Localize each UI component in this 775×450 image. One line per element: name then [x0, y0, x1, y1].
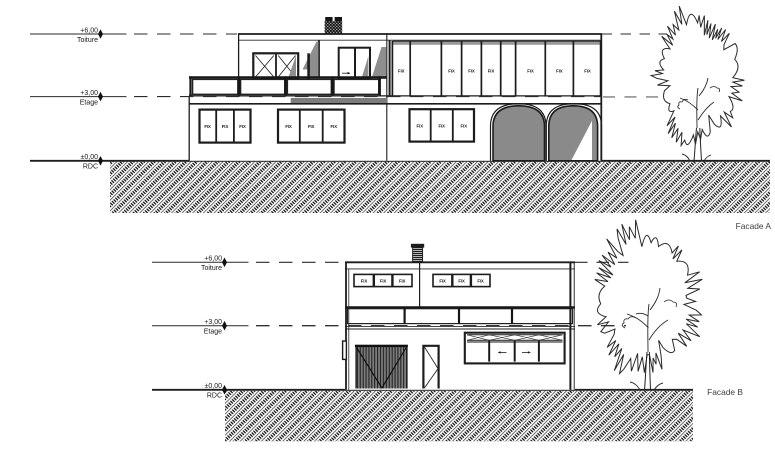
- svg-text:FIX: FIX: [380, 279, 387, 284]
- svg-text:FIX: FIX: [468, 68, 475, 73]
- svg-text:Toiture: Toiture: [77, 37, 98, 44]
- svg-text:FIX: FIX: [417, 124, 424, 129]
- svg-text:RDC: RDC: [83, 164, 98, 171]
- svg-text:±0,00: ±0,00: [81, 154, 99, 161]
- svg-text:FIX: FIX: [448, 68, 455, 73]
- svg-text:FIX: FIX: [222, 124, 229, 129]
- svg-text:FIX: FIX: [527, 68, 534, 73]
- svg-text:FIX: FIX: [584, 68, 591, 73]
- svg-text:FIX: FIX: [438, 124, 445, 129]
- svg-text:Facade B: Facade B: [707, 387, 743, 397]
- svg-text:FIX: FIX: [556, 68, 563, 73]
- svg-text:Etage: Etage: [80, 99, 98, 106]
- svg-text:+6,00: +6,00: [80, 27, 98, 34]
- svg-text:FIX: FIX: [458, 279, 465, 284]
- svg-text:FIX: FIX: [204, 124, 211, 129]
- svg-text:FIX: FIX: [488, 68, 495, 73]
- svg-text:FIX: FIX: [285, 124, 292, 129]
- svg-text:FIX: FIX: [308, 124, 315, 129]
- svg-text:Facade A: Facade A: [736, 221, 772, 231]
- svg-text:FIX: FIX: [398, 68, 405, 73]
- svg-text:FIX: FIX: [361, 279, 368, 284]
- svg-text:FIX: FIX: [477, 279, 484, 284]
- svg-text:FIX: FIX: [399, 279, 406, 284]
- svg-text:FIX: FIX: [331, 124, 338, 129]
- svg-text:Etage: Etage: [204, 329, 222, 336]
- svg-text:FIX: FIX: [439, 279, 446, 284]
- svg-text:+6,00: +6,00: [204, 256, 222, 263]
- svg-text:+3,00: +3,00: [80, 90, 98, 97]
- svg-text:+3,00: +3,00: [204, 319, 222, 326]
- svg-text:RDC: RDC: [207, 393, 222, 400]
- svg-text:Toiture: Toiture: [201, 265, 222, 272]
- svg-text:±0,00: ±0,00: [205, 383, 223, 390]
- svg-text:FIX: FIX: [461, 124, 468, 129]
- svg-text:FIX: FIX: [239, 124, 246, 129]
